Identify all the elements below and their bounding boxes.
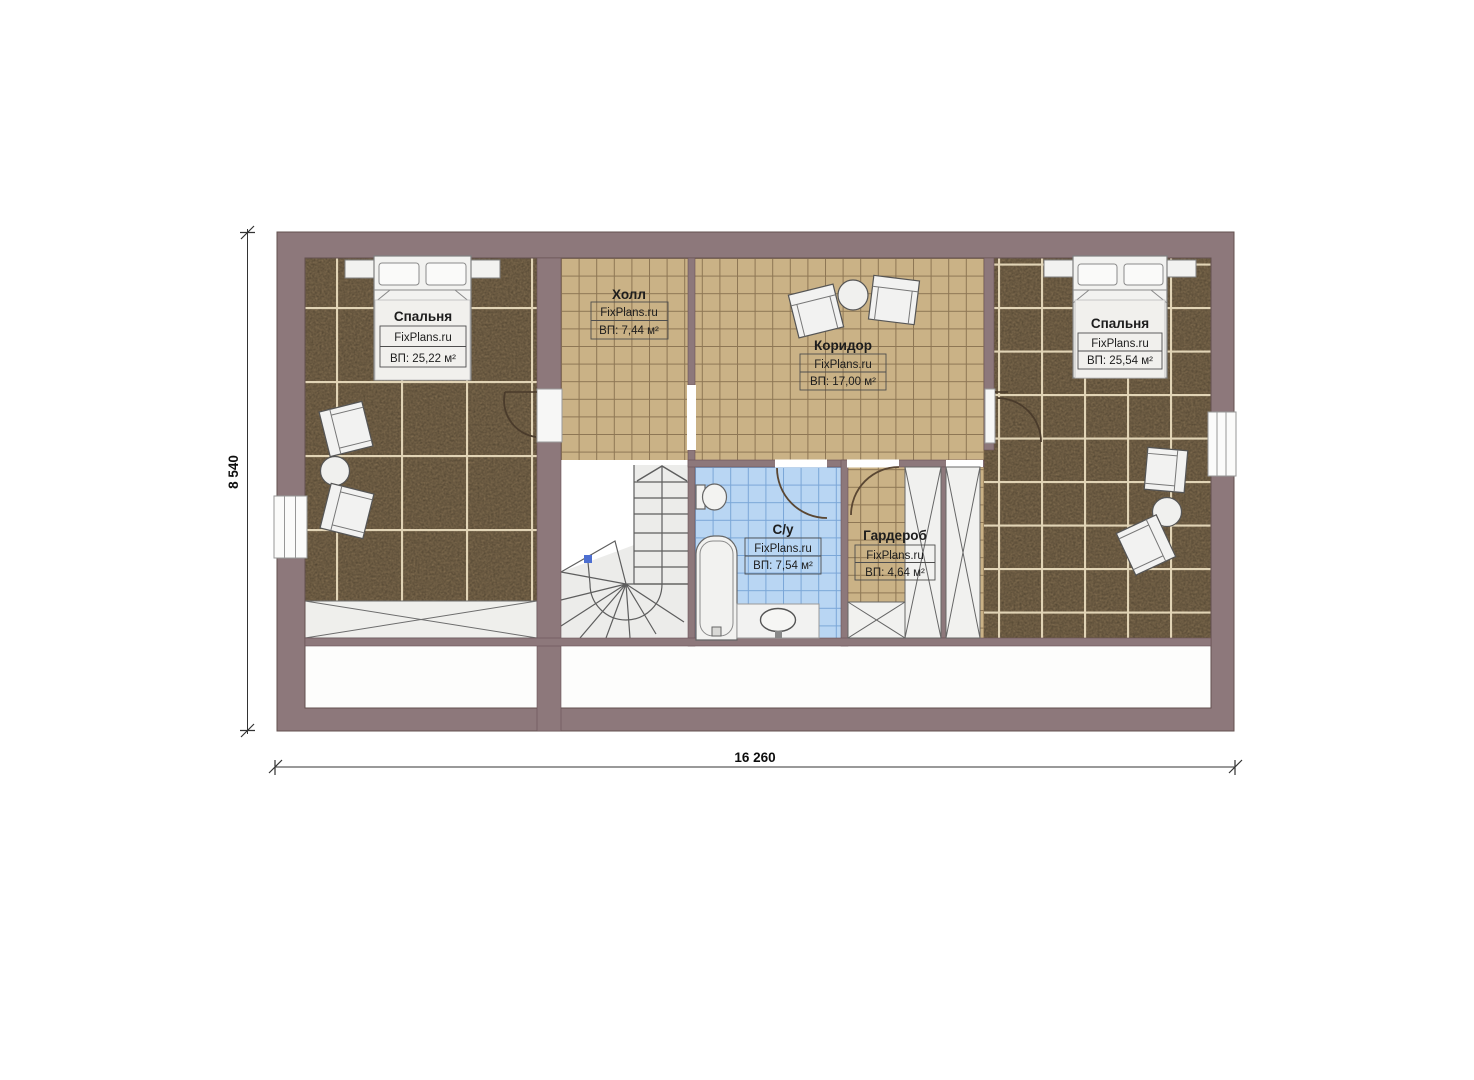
svg-text:ВП: 25,22 м²: ВП: 25,22 м² — [390, 353, 456, 365]
svg-text:FixPlans.ru: FixPlans.ru — [866, 550, 924, 562]
svg-text:ВП: 4,64 м²: ВП: 4,64 м² — [865, 567, 925, 579]
svg-text:Спальня: Спальня — [394, 309, 452, 324]
svg-text:С/у: С/у — [772, 522, 794, 537]
svg-text:ВП: 7,54 м²: ВП: 7,54 м² — [753, 560, 813, 572]
svg-text:16 260: 16 260 — [734, 750, 775, 765]
svg-text:FixPlans.ru: FixPlans.ru — [394, 332, 452, 344]
svg-text:ВП: 7,44 м²: ВП: 7,44 м² — [599, 325, 659, 337]
svg-text:FixPlans.ru: FixPlans.ru — [600, 307, 658, 319]
svg-text:Коридор: Коридор — [814, 338, 872, 353]
svg-text:8 540: 8 540 — [226, 455, 241, 489]
svg-text:ВП: 17,00 м²: ВП: 17,00 м² — [810, 376, 876, 388]
svg-text:Спальня: Спальня — [1091, 316, 1149, 331]
svg-text:FixPlans.ru: FixPlans.ru — [754, 543, 812, 555]
svg-text:Холл: Холл — [612, 287, 646, 302]
svg-text:ВП: 25,54 м²: ВП: 25,54 м² — [1087, 355, 1153, 367]
svg-text:Гардероб: Гардероб — [863, 528, 927, 543]
svg-text:FixPlans.ru: FixPlans.ru — [1091, 338, 1149, 350]
svg-text:FixPlans.ru: FixPlans.ru — [814, 359, 872, 371]
